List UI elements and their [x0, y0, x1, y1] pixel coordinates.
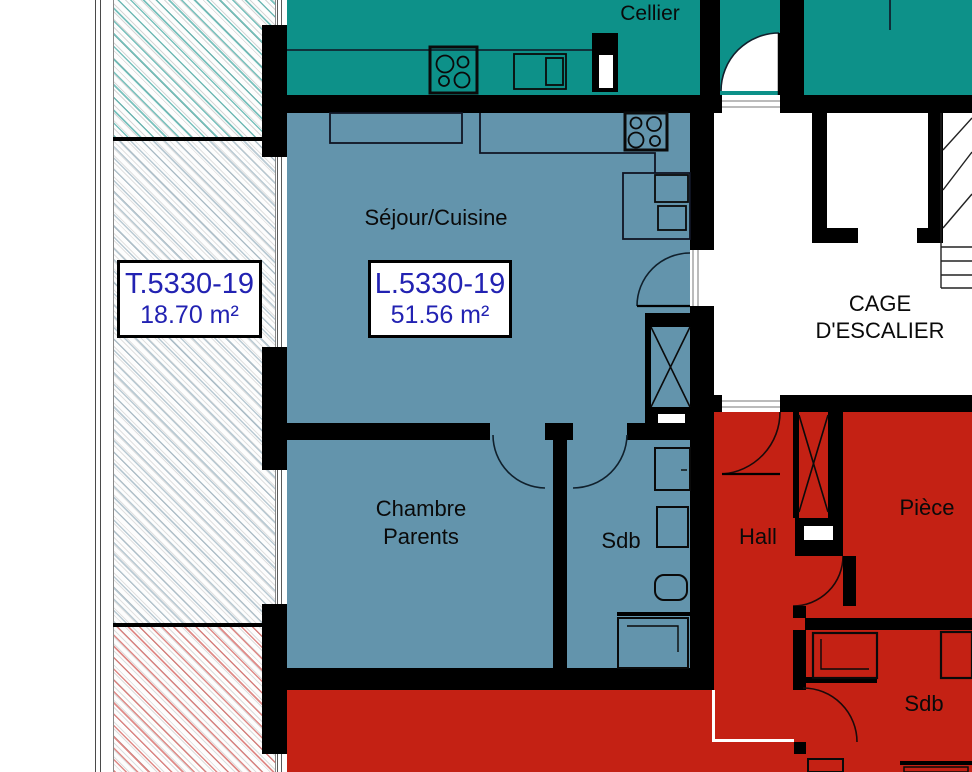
wall [793, 618, 972, 754]
sink-icon [514, 54, 566, 89]
washbasin-icon [655, 448, 690, 547]
door-threshold [722, 95, 780, 113]
unit-area: 51.56 m² [391, 301, 490, 330]
bathtub-icon [617, 612, 690, 668]
unit-area: 18.70 m² [140, 301, 239, 330]
door-arc [722, 412, 780, 474]
plan-linework [0, 0, 972, 772]
room-label-cellier: Cellier [620, 1, 680, 27]
bathtub-icon [900, 761, 972, 772]
sink-icon [655, 175, 688, 230]
stove-icon [625, 113, 667, 150]
stairs-icon [941, 113, 972, 288]
unit-separation-line [712, 690, 794, 742]
floor-plan-canvas: Cellier Séjour/Cuisine CAGE D'ESCALIER C… [0, 0, 972, 772]
cellier-door-jamb [592, 33, 618, 92]
unit-code: T.5330-19 [125, 268, 254, 301]
entrance-door [637, 250, 714, 306]
washbasin-icon [808, 759, 843, 772]
facade-wall-segments [262, 25, 287, 754]
door-arc [721, 33, 779, 95]
door-threshold [722, 395, 780, 412]
door-arc [793, 556, 856, 618]
toilet-icon [655, 575, 687, 600]
wall [287, 0, 972, 690]
duct-shaft-icon [793, 412, 843, 556]
room-label-sdb: Sdb [601, 528, 640, 554]
stove-icon [430, 47, 477, 93]
room-label-sejour-cuisine: Séjour/Cuisine [364, 205, 507, 231]
room-label-sdb: Sdb [904, 691, 943, 717]
room-label-piece: Pièce [899, 495, 954, 521]
room-label-chambre-parents: Chambre Parents [376, 495, 466, 551]
room-label-cage-escalier: CAGE D'ESCALIER [816, 290, 945, 344]
washbasin-icon [813, 632, 972, 678]
duct-shaft-icon [645, 313, 714, 425]
door-arc [803, 688, 857, 742]
unit-label-box-apartment: L.5330-19 51.56 m² [368, 260, 512, 338]
unit-label-box-terrace: T.5330-19 18.70 m² [117, 260, 262, 338]
unit-code: L.5330-19 [375, 268, 506, 301]
room-label-hall: Hall [739, 524, 777, 550]
